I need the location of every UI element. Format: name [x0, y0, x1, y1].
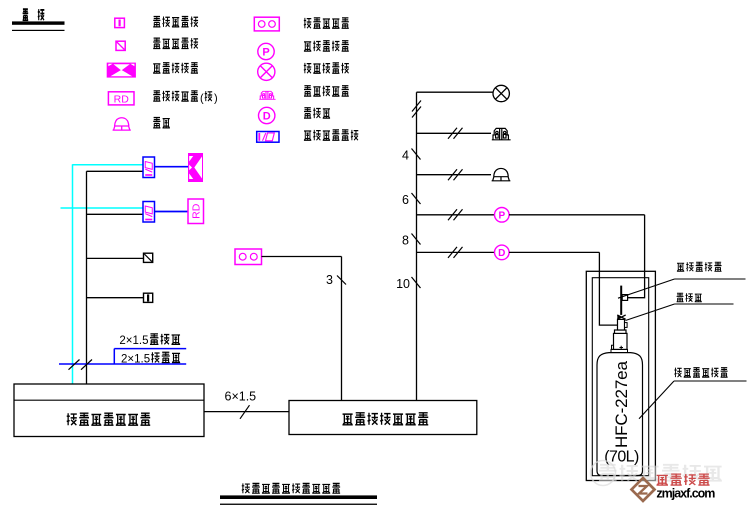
- svg-text:8: 8: [402, 234, 409, 248]
- svg-text:HFC-227ea: HFC-227ea: [612, 360, 631, 448]
- svg-text:D: D: [498, 248, 505, 259]
- svg-text:2×1.5: 2×1.5: [119, 335, 148, 347]
- svg-text:3: 3: [326, 273, 333, 287]
- svg-text:6×1.5: 6×1.5: [225, 390, 257, 404]
- svg-text:4: 4: [402, 149, 409, 163]
- svg-text:zmjaxf.com: zmjaxf.com: [656, 487, 715, 501]
- svg-text:): ): [214, 93, 218, 105]
- svg-text:RD: RD: [190, 203, 202, 219]
- svg-text:D: D: [263, 111, 271, 123]
- svg-text:6: 6: [402, 193, 409, 207]
- svg-text:P: P: [262, 47, 269, 59]
- svg-text:(: (: [200, 93, 204, 105]
- svg-text:P: P: [498, 211, 505, 222]
- svg-text:10: 10: [396, 277, 410, 291]
- svg-text:RD: RD: [114, 93, 130, 105]
